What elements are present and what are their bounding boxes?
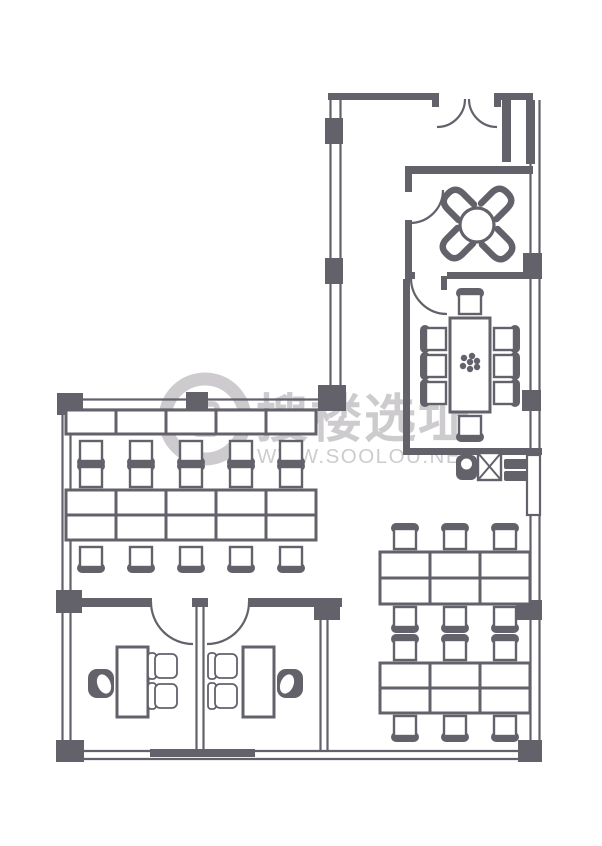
office-chair <box>391 716 419 742</box>
wall-offices-north-west <box>62 598 152 607</box>
wall-meeting-north-west <box>405 272 415 279</box>
wall-meeting-north-east <box>447 272 533 279</box>
office-left-door-arc <box>151 602 193 644</box>
desk <box>430 663 480 688</box>
guest-chair <box>208 653 237 679</box>
floor-plan: 搜楼选址 WWW.SOOLOU.NET <box>0 0 602 846</box>
office-desk <box>243 647 274 717</box>
wall-lounge-west-lower <box>405 220 412 278</box>
office-chair <box>277 461 305 487</box>
column-east <box>527 455 540 515</box>
office-chair <box>441 523 469 549</box>
office-chair <box>491 716 519 742</box>
desk <box>116 490 166 515</box>
wall-meeting-west <box>403 279 410 455</box>
meeting-chair <box>494 352 520 380</box>
entrance-door-arc-right <box>469 99 497 127</box>
wall-meeting-south <box>403 448 542 455</box>
desk <box>480 552 530 578</box>
desk <box>380 663 430 688</box>
office-chair <box>227 547 255 573</box>
desk <box>266 410 316 434</box>
office-desk <box>117 647 148 717</box>
meeting-chair <box>420 325 446 353</box>
meeting-door-leaf <box>441 276 447 290</box>
desk <box>430 688 480 713</box>
appliance <box>478 453 501 480</box>
office-chair <box>441 634 469 660</box>
wall-top-west <box>328 93 438 100</box>
office-chair <box>391 607 419 633</box>
entrance-jamb-left <box>432 93 439 107</box>
meeting-chair <box>494 325 520 353</box>
wall-south-center <box>150 749 255 757</box>
office-chair <box>127 461 155 487</box>
cabinet-lower <box>504 471 528 481</box>
meeting-chair <box>420 379 446 407</box>
desk <box>480 663 530 688</box>
wall-east-post-2 <box>522 390 541 411</box>
wall-offices-east-post <box>314 598 340 620</box>
meeting-chair <box>494 379 520 407</box>
sink-basin <box>461 459 472 470</box>
guest-chair <box>148 653 177 679</box>
desk <box>66 490 116 515</box>
wall-upper-west-post-1 <box>325 118 343 144</box>
wall-junction-post <box>318 385 346 411</box>
desk <box>380 552 430 578</box>
desk <box>116 515 166 540</box>
desk <box>216 410 266 434</box>
desk <box>430 552 480 578</box>
office-chair <box>227 461 255 487</box>
desk <box>380 578 430 604</box>
office-chair <box>177 461 205 487</box>
wall-east-top-segment <box>526 100 535 164</box>
wall-entry-niche <box>502 100 511 162</box>
office-chair <box>441 607 469 633</box>
desk <box>66 515 116 540</box>
office-chair <box>491 523 519 549</box>
office-chair <box>127 547 155 573</box>
meeting-chair <box>456 416 484 442</box>
office-chair <box>491 607 519 633</box>
office-chair <box>77 461 105 487</box>
office-chair <box>77 547 105 573</box>
desk <box>116 410 166 434</box>
office-chair <box>391 523 419 549</box>
wall-offices-north-center <box>192 598 208 607</box>
plan-layer <box>56 93 542 762</box>
office-chair <box>491 634 519 660</box>
meeting-chair <box>420 352 446 380</box>
office-chair <box>441 716 469 742</box>
office-chair <box>391 634 419 660</box>
office-chair <box>177 547 205 573</box>
desk <box>216 490 266 515</box>
desk <box>166 515 216 540</box>
wall-corner-southwest <box>56 740 84 762</box>
desk <box>216 515 266 540</box>
wall-corner-southeast <box>518 740 542 762</box>
desk <box>480 688 530 713</box>
executive-chair <box>88 669 114 698</box>
desk <box>66 410 116 434</box>
desk <box>166 410 216 434</box>
cabinet-upper <box>504 459 528 469</box>
meeting-chair <box>456 288 484 314</box>
guest-chair <box>208 683 237 709</box>
desk <box>380 688 430 713</box>
guest-chair <box>148 683 177 709</box>
wall-upper-west-post-2 <box>325 258 343 284</box>
floor-plan-canvas: 搜楼选址 WWW.SOOLOU.NET <box>0 0 602 846</box>
desk <box>166 490 216 515</box>
wall-lounge-north <box>405 166 533 174</box>
desk <box>480 578 530 604</box>
desk <box>430 578 480 604</box>
round-table <box>460 208 494 242</box>
desk <box>266 490 316 515</box>
entrance-jamb-right <box>494 93 501 107</box>
executive-chair <box>277 669 303 698</box>
office-right-door-arc <box>207 602 249 644</box>
lounge-door-arc <box>410 190 443 223</box>
wall-lounge-west-stub <box>405 166 412 192</box>
office-chair <box>277 547 305 573</box>
entrance-door-arc-left <box>437 99 465 127</box>
desk <box>266 515 316 540</box>
